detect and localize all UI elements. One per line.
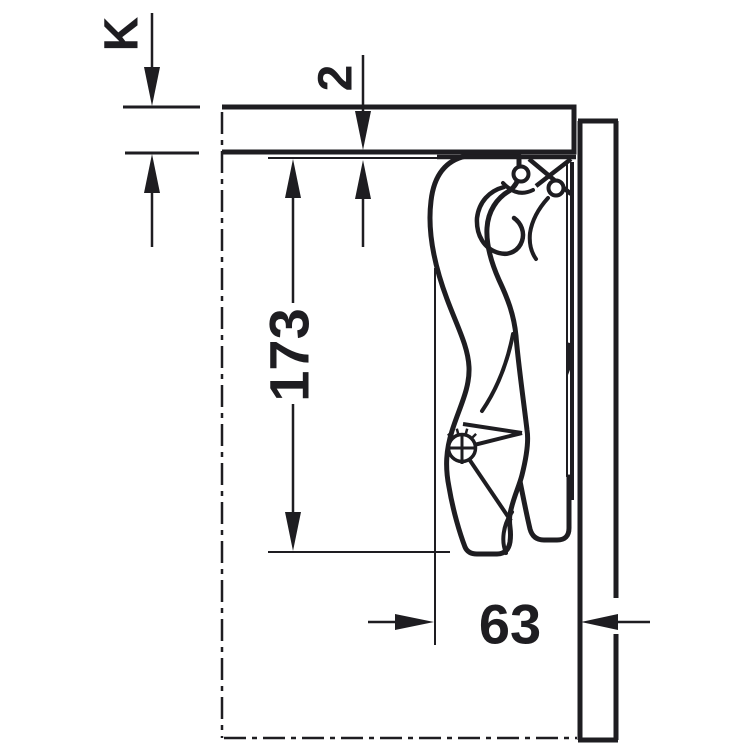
dimension-label-depth: 63 xyxy=(479,593,541,656)
dimension-k: K xyxy=(96,13,201,247)
lever-edge-detail xyxy=(530,198,548,259)
cabinet-top-panel xyxy=(222,107,574,152)
rail-bottom-end xyxy=(519,476,569,540)
pivot-hole-icon xyxy=(514,167,529,182)
dimension-label-k: K xyxy=(96,16,149,51)
flap-fitting-cross-section: K 2 173 63 xyxy=(0,0,756,756)
technical-drawing-canvas: K 2 173 63 xyxy=(0,0,756,756)
door-mounting-rail xyxy=(519,162,574,540)
pivot-hole-icon xyxy=(549,181,564,196)
flap-door-panel xyxy=(578,121,618,740)
dimension-height: 173 xyxy=(258,159,451,552)
dimension-label-height: 173 xyxy=(258,308,321,401)
dimension-label-gap: 2 xyxy=(310,65,363,92)
